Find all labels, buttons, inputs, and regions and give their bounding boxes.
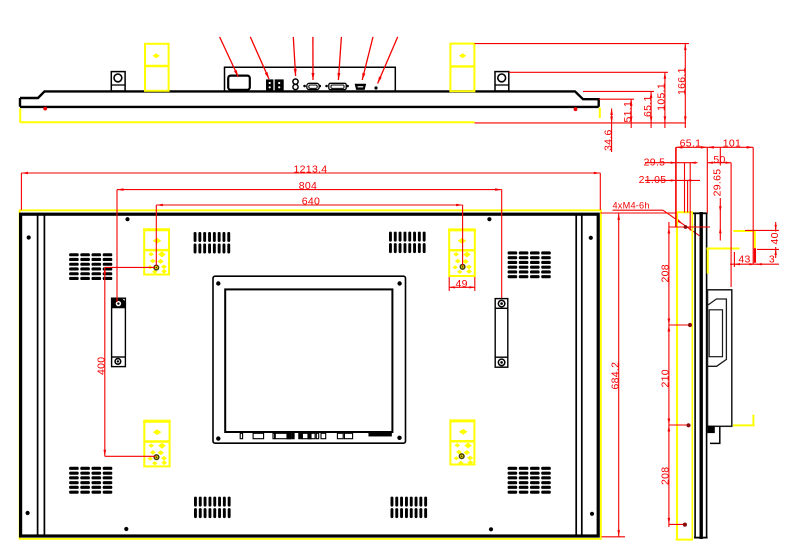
svg-text:51.1: 51.1 [622, 101, 634, 123]
svg-text:49: 49 [456, 278, 468, 290]
svg-text:208: 208 [660, 264, 672, 282]
svg-text:640: 640 [302, 196, 320, 208]
svg-text:29.65: 29.65 [712, 169, 724, 197]
svg-text:1213.4: 1213.4 [294, 164, 328, 176]
svg-text:50: 50 [713, 154, 725, 166]
svg-text:400: 400 [96, 357, 108, 375]
svg-text:40: 40 [769, 232, 781, 244]
svg-text:101: 101 [723, 138, 741, 150]
svg-text:210: 210 [660, 369, 672, 387]
svg-text:804: 804 [299, 180, 317, 192]
svg-text:34.6: 34.6 [602, 129, 614, 151]
svg-text:105.1: 105.1 [656, 83, 668, 111]
svg-text:684.2: 684.2 [609, 362, 621, 390]
svg-text:29.5: 29.5 [644, 156, 666, 168]
svg-text:65.1: 65.1 [642, 95, 654, 117]
svg-text:166.1: 166.1 [676, 67, 688, 95]
svg-text:21.05: 21.05 [639, 174, 667, 186]
svg-text:43: 43 [738, 254, 750, 266]
svg-text:3: 3 [769, 254, 775, 266]
svg-text:65.1: 65.1 [680, 138, 702, 150]
svg-text:208: 208 [660, 467, 672, 485]
svg-text:4xM4-6h: 4xM4-6h [613, 201, 650, 211]
